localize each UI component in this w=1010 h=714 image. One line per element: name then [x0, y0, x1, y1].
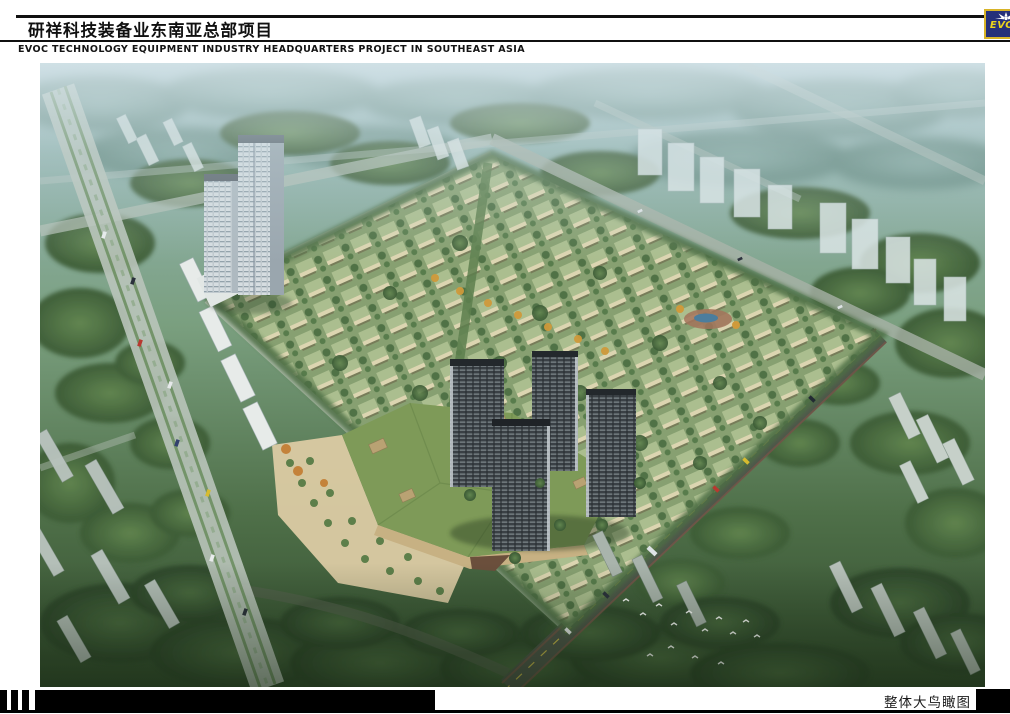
header-rule-thin [0, 40, 1010, 42]
aerial-rendering [40, 63, 985, 687]
logo-wordmark: EVOC [986, 21, 1010, 31]
footer-baseline [0, 710, 1010, 713]
haze-overlay [40, 63, 985, 263]
footer-square [976, 689, 1010, 711]
page-title: 研祥科技装备业东南亚总部项目 [28, 17, 273, 41]
vignette-bottom [40, 563, 985, 687]
presentation-board: 研祥科技装备业东南亚总部项目 EVOC TECHNOLOGY EQUIPMENT… [0, 0, 1010, 714]
footer-tick-2 [11, 690, 18, 711]
page-subtitle: EVOC TECHNOLOGY EQUIPMENT INDUSTRY HEADQ… [18, 44, 525, 55]
footer-tick-3 [22, 690, 29, 711]
footer-bar [35, 690, 435, 711]
drawing-caption: 整体大鸟瞰图 [884, 691, 971, 711]
footer-tick-1 [0, 690, 7, 711]
evoc-logo: EVOC [984, 9, 1010, 39]
